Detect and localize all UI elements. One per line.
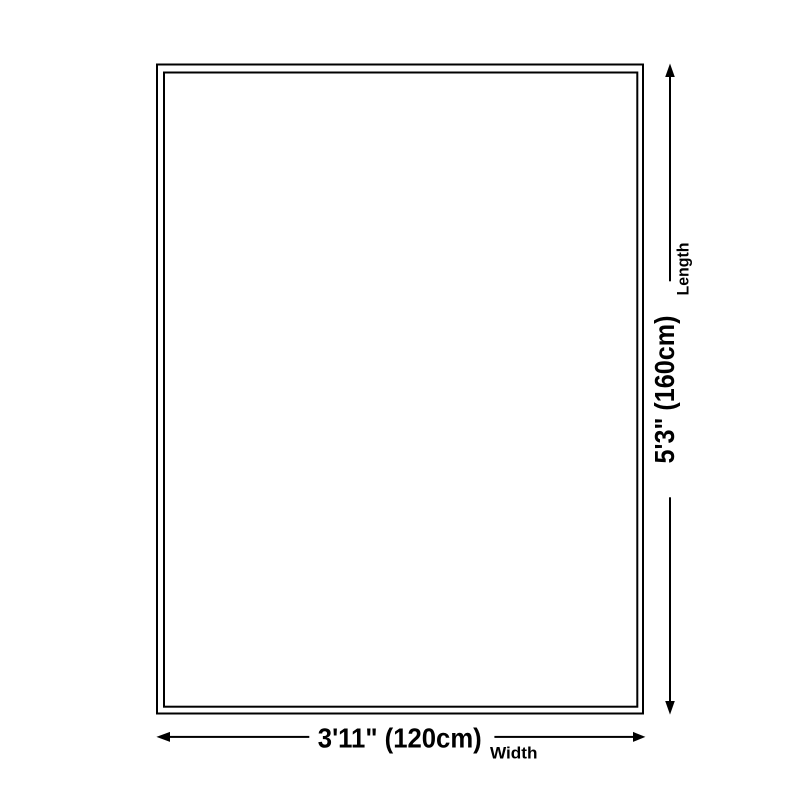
svg-text:Width: Width xyxy=(490,744,538,763)
svg-text:5'3" (160cm): 5'3" (160cm) xyxy=(649,316,680,464)
svg-text:Length: Length xyxy=(674,243,693,296)
svg-text:3'11" (120cm): 3'11" (120cm) xyxy=(318,723,482,754)
